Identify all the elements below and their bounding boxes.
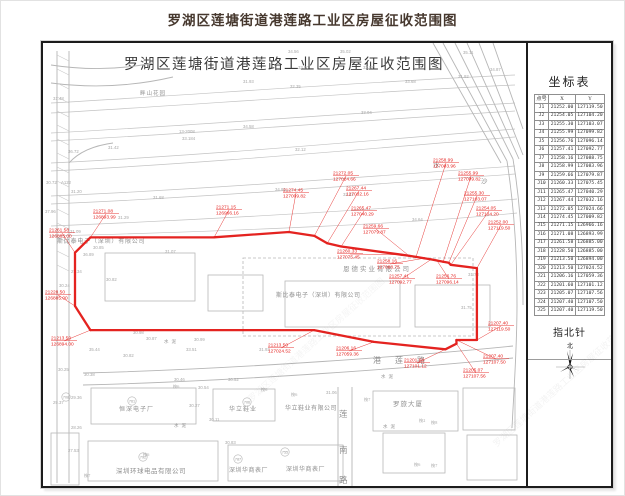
building-outline: [105, 253, 195, 301]
coordinate-row: J1521271.15126966.16: [534, 222, 604, 230]
coordinate-table-header: 点号XY: [534, 95, 604, 104]
elevation-label: 35.44: [89, 347, 100, 352]
building-outline: [285, 281, 400, 327]
elevation-label: 30.25: [58, 367, 69, 372]
elevation-label: 30.99: [194, 337, 205, 342]
elevation-label: A122: [61, 180, 72, 185]
vertex-label-x: 21207.40: [483, 354, 503, 360]
vertex-label-x: 21259.66: [363, 224, 383, 230]
elevation-label: 34.64: [412, 217, 423, 222]
place-label: 恒深电子厂: [119, 405, 154, 413]
vertex-label-x: 21258.16: [377, 259, 397, 265]
elevation-label: 30.72: [46, 180, 57, 185]
vertex-label-x: 21271.15: [216, 205, 236, 211]
elevation-label: 30.87: [146, 336, 157, 341]
place-label: 深圳华商表厂: [229, 466, 268, 474]
vertex-label-x: 21213.50: [268, 343, 288, 349]
elevation-label: 33.68: [405, 79, 416, 84]
vertex-label-y: 127083.96: [433, 164, 456, 170]
tree-label: 桉8: [431, 419, 437, 426]
vertex-label-x: 21256.76: [436, 274, 456, 280]
coordinate-row: J2521207.40127119.50: [534, 307, 604, 315]
coordinate-row: J721258.16127088.75: [534, 154, 604, 162]
vertex-leader-line: [314, 176, 346, 236]
legend-sidebar: 坐标表 点号XY J121252.00127119.50J221254.0512…: [526, 43, 611, 486]
elevation-label: 35.02: [340, 49, 351, 54]
place-label: 水泥: [381, 373, 396, 380]
place-label: 罗旅大厦: [393, 399, 423, 408]
road-line: [51, 75, 515, 103]
coordinate-row: J121252.00127119.50: [534, 104, 604, 112]
coordinate-col-header: 点号: [534, 95, 548, 104]
page-title: 罗湖区莲塘街道港莲路工业区房屋征收范围图: [1, 9, 624, 29]
vertex-label-y: 127107.50: [483, 360, 506, 366]
vertex-label-x: 21201.60: [404, 358, 424, 364]
vertex-label-x: 21261.58: [49, 228, 69, 234]
elevation-label: 30.38: [84, 372, 95, 377]
elevation-label: 31.93: [243, 79, 254, 84]
compass: 北: [528, 341, 611, 388]
vertex-label-x: 21228.50: [45, 290, 65, 296]
building-number: 755: [282, 451, 288, 455]
vertex-label-y: 127107.56: [463, 374, 486, 380]
elevation-label: 30.24: [59, 283, 70, 288]
coordinate-row: J421255.99127099.82: [534, 129, 604, 137]
building-outline: [463, 388, 515, 430]
coordinate-row: J2021213.50127024.52: [534, 265, 604, 273]
elevation-label: 31.07: [165, 249, 176, 254]
elevation-label: 33.184: [182, 136, 196, 141]
tree-label: 桉6: [414, 461, 420, 468]
coordinate-row: J1921213.50126894.00: [534, 256, 604, 264]
elevation-label: 33.51: [186, 347, 197, 352]
vertex-label-x: 21255.30: [464, 191, 484, 197]
place-label: 水泥: [383, 423, 398, 430]
coordinate-row: J2121206.16127059.36: [534, 273, 604, 281]
coordinate-row: J821258.99127083.96: [534, 163, 604, 171]
tree-label: 桉6: [291, 391, 297, 398]
elevation-label: 34.58: [243, 124, 254, 129]
map-title: 罗湖区莲塘街道港莲路工业区房屋征收范围图: [124, 56, 444, 73]
vertex-label-y: 127119.50: [488, 327, 511, 333]
tree-label: 桉7: [364, 396, 370, 403]
vertex-label-y: 127088.75: [377, 265, 400, 271]
slope-hatch: [57, 209, 69, 215]
elevation-label: 34.56: [288, 49, 299, 54]
elevation-label: 31.09: [70, 229, 81, 234]
coordinate-table: 点号XY J121252.00127119.50J221254.05127104…: [534, 94, 605, 316]
page: 罗湖区莲塘街道港莲路工业区房屋征收范围图 罗湖区莲塘街道港莲路工业区房屋征收范围…: [0, 0, 625, 496]
building-outline: [91, 388, 196, 424]
elevation-label: 29.36: [71, 395, 82, 400]
elevation-label: 34.87: [490, 67, 501, 72]
vertex-label-y: 127024.66: [333, 177, 356, 183]
elevation-label: 30.82: [123, 353, 134, 358]
road-line: [51, 111, 515, 141]
place-label: 沙: [481, 178, 488, 185]
vertex-label-y: 127024.52: [268, 349, 291, 355]
slope-hatch: [57, 195, 69, 201]
vertex-label-y: 127092.77: [389, 280, 412, 286]
vertex-leader-line: [416, 163, 446, 257]
coordinate-row: J1721261.58126885.00: [534, 239, 604, 247]
elevation-label: 30.82: [106, 277, 117, 282]
road-line: [433, 43, 501, 163]
elevation-label: 31.48: [53, 96, 64, 101]
elevation-label: 32.12: [295, 147, 306, 152]
slope-hatch: [57, 55, 69, 61]
elevation-label: 27.34: [71, 269, 82, 274]
elevation-label: 31.68: [153, 195, 164, 200]
coordinate-row: J321255.30127103.07: [534, 121, 604, 129]
tree-label: 桉7: [84, 472, 90, 479]
map-drawing-area: 罗湖区莲塘街道港莲路工业区房屋征收范围图 畔山花园恩德实业有限公司斯比泰电子（深…: [43, 43, 526, 486]
elevation-label: 36.72: [68, 149, 79, 154]
coordinate-col-header: Y: [575, 95, 604, 104]
building-number: 708: [63, 396, 69, 400]
coordinate-row: J1021260.33127075.45: [534, 180, 604, 188]
road-line: [83, 346, 513, 373]
elevation-label: 30.52: [228, 377, 239, 382]
vertex-label-y: 127099.82: [458, 177, 481, 183]
vertex-label-y: 127119.50: [488, 226, 511, 232]
elevation-label: 27.53: [68, 448, 79, 453]
boundary-vertex: [89, 329, 91, 331]
elevation-label: 30.83: [225, 440, 236, 445]
road-line: [83, 358, 513, 385]
tree-label: 桉6: [261, 386, 267, 393]
coordinate-row: J1421274.45127009.82: [534, 214, 604, 222]
elevation-label: 33.04: [361, 110, 372, 115]
building-outline: [88, 441, 218, 481]
vertex-label-y: 127059.36: [336, 352, 359, 358]
sidebar-divider: [528, 359, 611, 360]
coordinate-row: J1821228.50126885.00: [534, 248, 604, 256]
vertex-label-x: 21257.41: [389, 274, 409, 280]
vertex-label-x: 21274.45: [283, 188, 303, 194]
vertex-label-x: 21265.47: [351, 206, 371, 212]
compass-label: 指北针: [528, 324, 611, 339]
building-outline: [51, 433, 79, 485]
road-line: [455, 43, 513, 159]
building-outline: [208, 275, 263, 311]
coordinate-row: J221254.05127104.20: [534, 112, 604, 120]
coordinate-row: J1621271.08126893.99: [534, 231, 604, 239]
slope-hatch: [57, 251, 69, 257]
vertex-label-y: 127009.82: [283, 194, 306, 200]
street-name-liannan-road: 南: [339, 445, 348, 455]
map-sheet: 罗湖区莲塘街道港莲路工业区房屋征收范围图 畔山花园恩德实业有限公司斯比泰电子（深…: [41, 41, 613, 488]
elevation-label: 37.96: [45, 209, 56, 214]
building-outline: [415, 285, 490, 327]
place-label: 华立鞋业: [229, 405, 257, 413]
building-number: 787: [235, 458, 241, 462]
vertex-label-y: 127096.14: [436, 280, 459, 286]
road-line: [51, 199, 517, 226]
street-name-liannan-road: 路: [339, 475, 348, 485]
coordinate-row: J2321205.07127107.56: [534, 290, 604, 298]
vertex-label-y: 126885.00: [49, 234, 72, 240]
place-label: 深圳环球电品有限公司: [116, 466, 186, 475]
vertex-label-x: 21271.08: [93, 209, 113, 215]
elevation-label: 35.11: [463, 50, 474, 55]
place-label: 深圳华商表厂: [286, 465, 325, 473]
elevation-label: 30.85: [93, 245, 104, 250]
coordinate-row: J621257.41127092.77: [534, 146, 604, 154]
place-label: 畔山花园: [140, 89, 166, 97]
elevation-label: 13-2008: [179, 129, 195, 134]
coordinate-row: J921259.66127079.87: [534, 171, 604, 179]
map-text-labels: 畔山花园恩德实业有限公司斯比泰电子（深圳）有限公司斯比泰电子（深圳）有限公司恒深…: [45, 49, 501, 485]
tree-label: 桉7: [431, 462, 437, 469]
elevation-label: 30.11: [209, 417, 220, 422]
elevation-label: 31.92: [458, 74, 469, 79]
elevation-label: 28.26: [71, 425, 82, 430]
tree-label: 桉2: [419, 417, 425, 424]
coordinate-row: J1221267.44127032.16: [534, 197, 604, 205]
vertex-label-x: 21205.07: [463, 368, 483, 374]
vertex-label-x: 21255.99: [458, 171, 478, 177]
place-label: 斯比泰电子（深圳）有限公司: [276, 291, 361, 299]
vertex-label-y: 126885.00: [45, 296, 68, 302]
vertex-label-x: 21272.05: [333, 171, 353, 177]
coordinate-row: J2421207.40127107.50: [534, 298, 604, 306]
road-line: [512, 305, 517, 428]
elevation-label: 30.27: [189, 403, 200, 408]
tree-label: 桉6: [173, 383, 179, 390]
vertex-label-y: 126893.99: [93, 215, 116, 221]
building-number: 706: [244, 401, 250, 405]
survey-map: 罗湖区莲塘街道港莲路工业区房屋征收范围图 畔山花园恩德实业有限公司斯比泰电子（深…: [43, 43, 526, 486]
elevation-label: 31.29: [118, 215, 129, 220]
building-outline: [467, 435, 517, 480]
building-number: 761: [129, 400, 135, 404]
vertex-label-y: 127040.29: [351, 212, 374, 218]
coordinate-row: J2221201.60127101.12: [534, 281, 604, 289]
vertex-label-y: 127103.07: [464, 197, 487, 203]
coordinate-row: J1121265.47127040.29: [534, 188, 604, 196]
street-name-liannan-road: 莲: [339, 409, 348, 419]
vertex-leader-line: [449, 196, 477, 263]
elevation-label: 32.35: [290, 84, 301, 89]
vertex-label-y: 126894.00: [51, 342, 74, 348]
compass-north-char: 北: [566, 342, 572, 350]
vertex-label-y: 127101.12: [404, 364, 427, 370]
elevation-label: 31.06: [326, 390, 337, 395]
coordinate-table-title: 坐标表: [528, 73, 611, 90]
elevation-label: 32.97: [363, 65, 374, 70]
coordinate-row: J1321272.05127024.66: [534, 205, 604, 213]
vertex-label-x: 21260.33: [337, 249, 357, 255]
road-line: [507, 161, 517, 305]
vertex-label-x: 21213.50: [51, 336, 71, 342]
vertex-label-y: 127032.16: [346, 192, 369, 198]
building-number: 792: [140, 456, 146, 460]
place-label: 水泥: [164, 338, 179, 345]
elevation-label: 31.42: [108, 145, 119, 150]
vertex-label-y: 127104.20: [476, 212, 499, 218]
coordinate-col-header: X: [549, 95, 576, 104]
vertex-label-x: 21206.16: [336, 346, 356, 352]
place-label: 水泥: [174, 422, 189, 429]
elevation-label: 30.54: [198, 385, 209, 390]
elevation-label: 31.20: [71, 189, 82, 194]
north-arrow-icon: 北: [550, 341, 590, 383]
elevation-label: 31.75: [461, 305, 472, 310]
elevation-label: 30.46: [174, 377, 185, 382]
vertex-label-x: 21252.00: [488, 220, 508, 226]
elevation-label: 36.89: [83, 252, 94, 257]
vertex-label-y: 126966.16: [216, 211, 239, 217]
vertex-label-x: 21258.99: [433, 158, 453, 164]
vertex-label-x: 21254.05: [476, 206, 496, 212]
slope-hatch: [57, 69, 69, 75]
slope-hatch: [57, 265, 69, 271]
elevation-label: 33.90: [298, 65, 309, 70]
vertex-label-x: 21207.40: [488, 321, 508, 327]
vertex-label-y: 127075.45: [337, 255, 360, 261]
vertex-label-x: 21267.44: [346, 186, 366, 192]
place-label: 华立鞋业有限公司: [285, 404, 337, 412]
coordinate-row: J521256.76127096.14: [534, 137, 604, 145]
vertex-label-y: 127079.87: [363, 230, 386, 236]
elevation-label: 29.37: [53, 400, 64, 405]
road-line: [51, 103, 515, 133]
slope-hatch: [57, 125, 69, 131]
